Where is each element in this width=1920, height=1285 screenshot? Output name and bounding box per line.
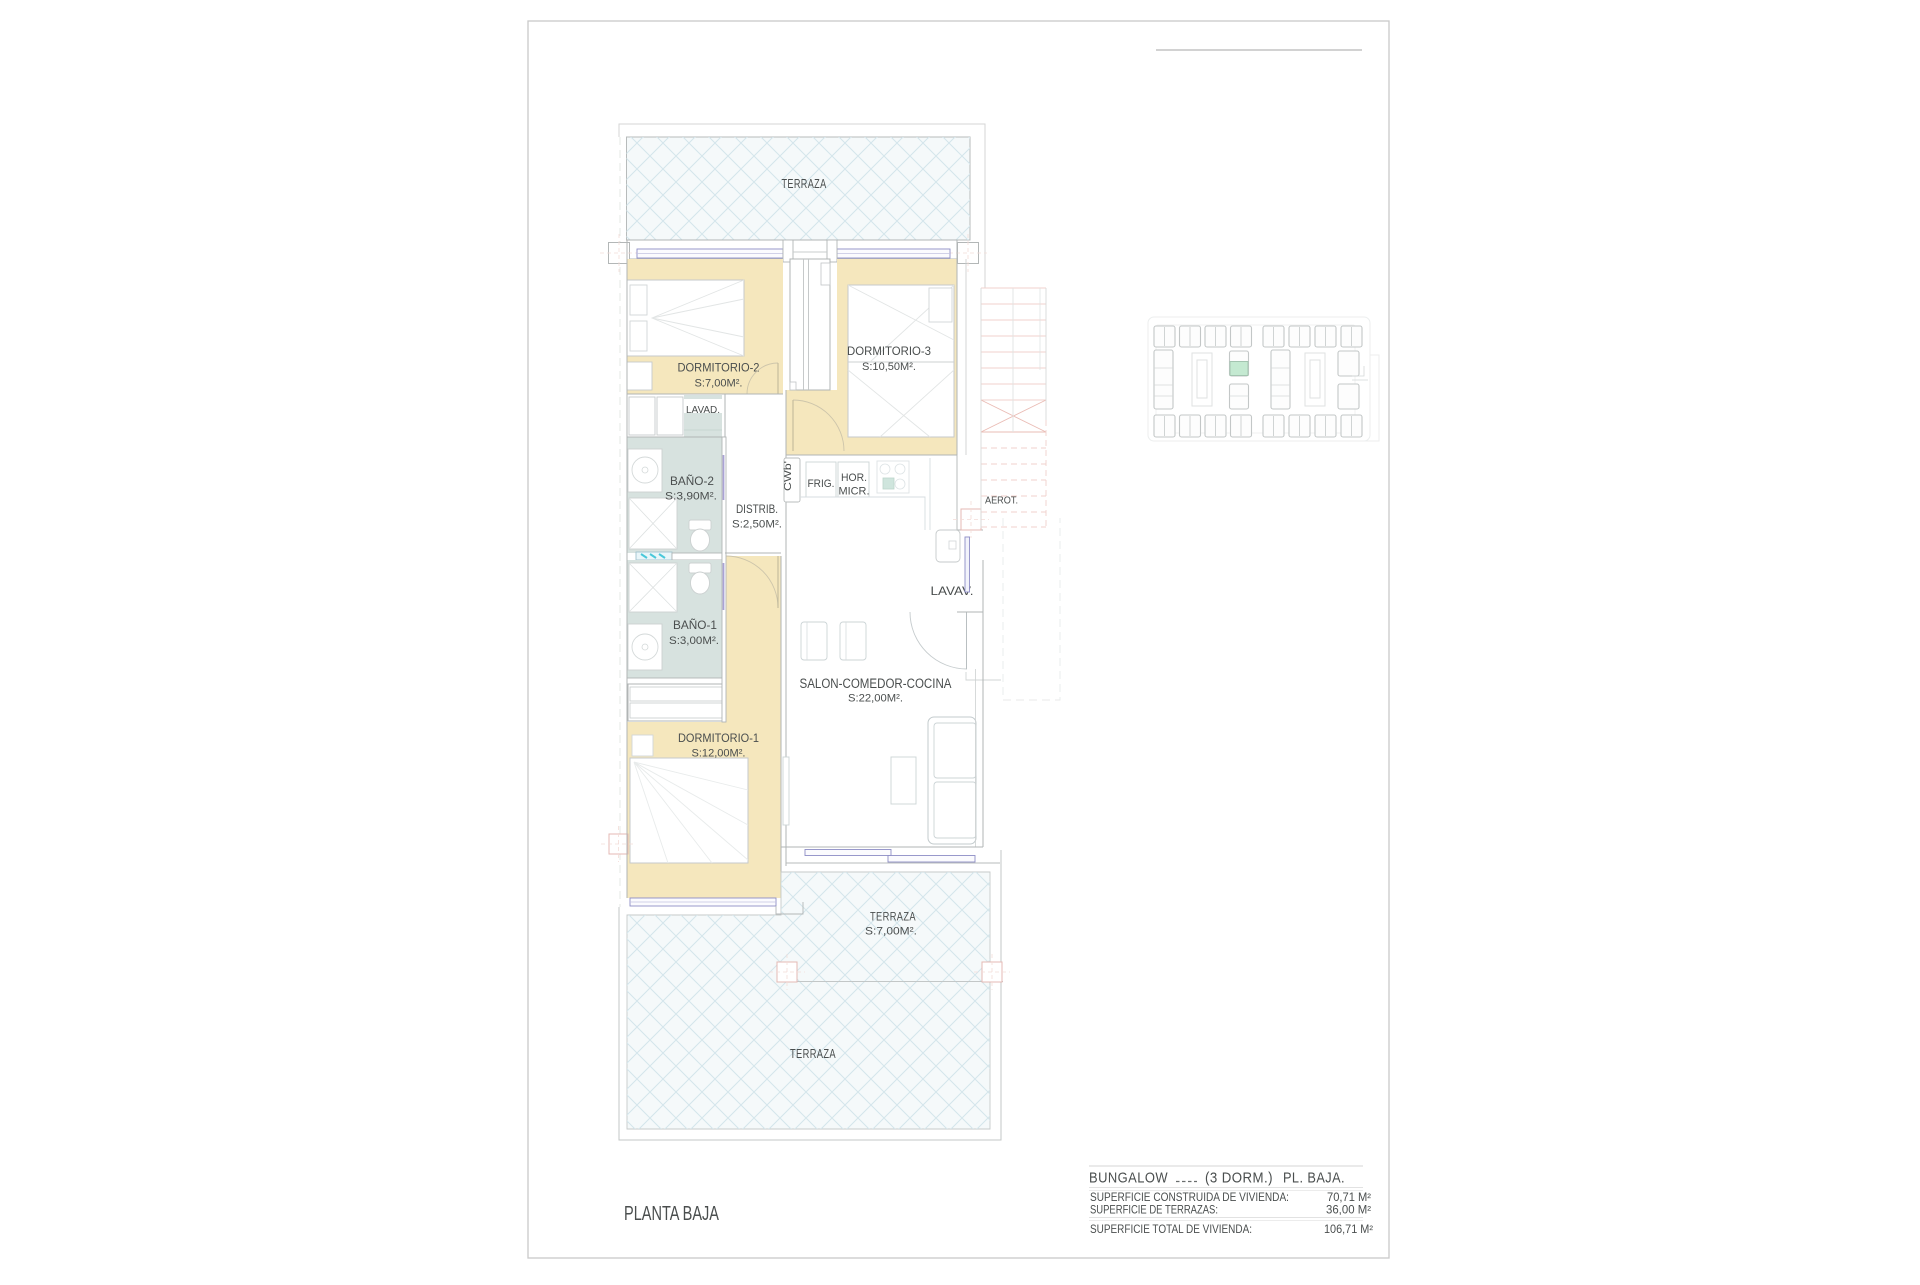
svg-text:36,00 M²: 36,00 M² — [1326, 1205, 1371, 1217]
svg-text:70,71 M²: 70,71 M² — [1327, 1192, 1371, 1204]
svg-text:S:22,00M².: S:22,00M². — [848, 693, 903, 705]
svg-text:TERRAZA: TERRAZA — [782, 176, 827, 191]
svg-text:SALON-COMEDOR-COCINA: SALON-COMEDOR-COCINA — [800, 676, 952, 691]
svg-text:(3 DORM.): (3 DORM.) — [1205, 1170, 1273, 1187]
svg-text:SUPERFICIE DE TERRAZAS:: SUPERFICIE DE TERRAZAS: — [1090, 1205, 1218, 1217]
svg-text:CWb': CWb' — [783, 461, 794, 491]
svg-text:S:3,90M².: S:3,90M². — [665, 491, 717, 503]
svg-text:MICR.: MICR. — [839, 486, 870, 498]
svg-text:AEROT.: AEROT. — [985, 496, 1018, 507]
svg-text:DORMITORIO-2: DORMITORIO-2 — [678, 361, 760, 375]
svg-text:106,71 M²: 106,71 M² — [1324, 1224, 1373, 1236]
svg-text:TERRAZA: TERRAZA — [870, 910, 916, 924]
svg-text:PL. BAJA.: PL. BAJA. — [1283, 1170, 1345, 1187]
svg-text:DISTRIB.: DISTRIB. — [736, 502, 778, 516]
svg-text:S:10,50M².: S:10,50M². — [862, 361, 916, 373]
svg-text:SUPERFICIE CONSTRUIDA DE VIVIE: SUPERFICIE CONSTRUIDA DE VIVIENDA: — [1090, 1192, 1289, 1204]
svg-text:LAVAD.: LAVAD. — [686, 405, 720, 416]
svg-text:BUNGALOW: BUNGALOW — [1089, 1170, 1168, 1187]
svg-text:S:12,00M².: S:12,00M². — [692, 748, 746, 760]
svg-text:S:3,00M².: S:3,00M². — [669, 635, 719, 647]
svg-text:BAÑO-2: BAÑO-2 — [670, 474, 714, 488]
svg-text:HOR.: HOR. — [841, 472, 867, 484]
svg-text:BAÑO-1: BAÑO-1 — [673, 618, 717, 632]
svg-text:PLANTA BAJA: PLANTA BAJA — [624, 1202, 719, 1225]
svg-text:S:7,00M².: S:7,00M². — [865, 926, 917, 938]
svg-text:SUPERFICIE TOTAL DE VIVIENDA:: SUPERFICIE TOTAL DE VIVIENDA: — [1090, 1224, 1252, 1236]
svg-text:DORMITORIO-1: DORMITORIO-1 — [678, 731, 759, 745]
svg-text:FRIG.: FRIG. — [808, 478, 835, 490]
svg-text:DORMITORIO-3: DORMITORIO-3 — [847, 344, 931, 358]
svg-text:S:2,50M².: S:2,50M². — [732, 519, 782, 531]
svg-text:TERRAZA: TERRAZA — [790, 1046, 836, 1061]
svg-text:S:7,00M².: S:7,00M². — [695, 378, 743, 390]
